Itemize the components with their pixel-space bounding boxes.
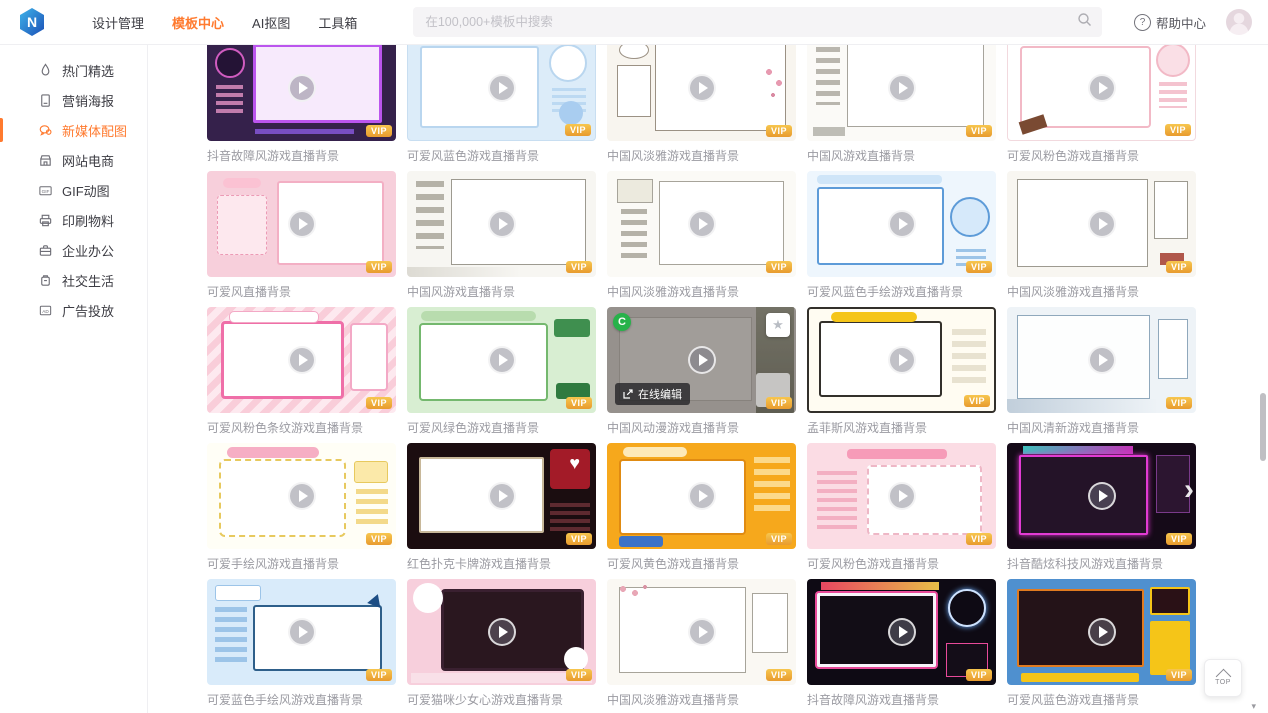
vip-badge: VIP	[766, 261, 792, 273]
sidebar-item-print[interactable]: 印刷物料	[0, 205, 147, 235]
template-card[interactable]: VIP 中国风淡雅游戏直播背景	[607, 45, 796, 163]
template-card[interactable]: VIP 可爱风直播背景	[207, 171, 396, 299]
sidebar-item-office[interactable]: 企业办公	[0, 235, 147, 265]
vip-badge: VIP	[366, 261, 392, 273]
template-card[interactable]: VIP 可爱手绘风游戏直播背景	[207, 443, 396, 571]
play-icon	[1088, 210, 1116, 238]
navbar-right: 帮助中心	[1134, 9, 1252, 35]
sidebar-item-new-media[interactable]: 新媒体配图	[0, 115, 147, 145]
play-icon	[688, 618, 716, 646]
play-icon	[1088, 618, 1116, 646]
search-bar[interactable]	[413, 7, 1102, 37]
template-title[interactable]: 可爱风蓝色游戏直播背景	[407, 149, 596, 163]
template-card[interactable]: VIP 抖音酷炫科技风游戏直播背景	[1007, 443, 1196, 571]
template-thumbnail[interactable]: VIP	[607, 171, 796, 277]
vip-badge: VIP	[766, 397, 792, 409]
briefcase-icon	[38, 243, 53, 258]
vip-badge: VIP	[766, 669, 792, 681]
template-title[interactable]: 抖音故障风游戏直播背景	[207, 149, 396, 163]
vip-badge: VIP	[1166, 397, 1192, 409]
sidebar-item-label: 企业办公	[62, 241, 114, 260]
question-icon	[1134, 14, 1151, 31]
play-icon	[488, 74, 516, 102]
vip-badge: VIP	[366, 397, 392, 409]
template-card[interactable]: VIP 抖音故障风游戏直播背景	[807, 579, 996, 707]
template-thumbnail[interactable]: VIP	[207, 171, 396, 277]
template-card[interactable]: VIP 可爱风黄色游戏直播背景	[607, 443, 796, 571]
svg-text:N: N	[27, 14, 37, 30]
template-thumbnail[interactable]: VIP	[607, 45, 796, 141]
svg-text:GIF: GIF	[42, 188, 50, 193]
sidebar-item-label: 广告投放	[62, 301, 114, 320]
sidebar-item-marketing-poster[interactable]: 营销海报	[0, 85, 147, 115]
template-card[interactable]: VIP 抖音故障风游戏直播背景	[207, 45, 396, 163]
template-title[interactable]: 可爱风粉色游戏直播背景	[1007, 149, 1196, 163]
sidebar-item-label: 印刷物料	[62, 211, 114, 230]
template-card[interactable]: VIP 中国风淡雅游戏直播背景	[607, 171, 796, 299]
vip-badge: VIP	[1165, 124, 1191, 136]
vip-badge: VIP	[966, 533, 992, 545]
play-icon	[288, 74, 316, 102]
play-icon	[888, 346, 916, 374]
template-thumbnail[interactable]: VIP	[807, 443, 996, 549]
template-title[interactable]: 可爱风蓝色手绘游戏直播背景	[807, 285, 996, 299]
back-to-top-button[interactable]: TOP	[1204, 659, 1242, 697]
template-title[interactable]: 抖音故障风游戏直播背景	[807, 693, 996, 707]
vip-badge: VIP	[766, 125, 792, 137]
template-title[interactable]: 可爱风直播背景	[207, 285, 396, 299]
storefront-icon	[38, 153, 53, 168]
favorite-star-button[interactable]	[766, 313, 790, 337]
template-title[interactable]: 中国风游戏直播背景	[407, 285, 596, 299]
play-icon	[1088, 74, 1116, 102]
vip-badge: VIP	[366, 669, 392, 681]
template-title[interactable]: 抖音酷炫科技风游戏直播背景	[1007, 557, 1196, 571]
template-title[interactable]: 可爱猫咪少女心游戏直播背景	[407, 693, 596, 707]
template-thumbnail[interactable]: VIP	[207, 443, 396, 549]
help-center-label: 帮助中心	[1156, 13, 1206, 32]
vip-badge: VIP	[766, 533, 792, 545]
template-title[interactable]: 可爱风粉色条纹游戏直播背景	[207, 421, 396, 435]
play-icon	[288, 482, 316, 510]
template-card[interactable]: VIP 可爱风粉色条纹游戏直播背景	[207, 307, 396, 435]
play-icon	[888, 74, 916, 102]
template-title[interactable]: 中国风游戏直播背景	[807, 149, 996, 163]
template-card[interactable]: VIP 可爱风绿色游戏直播背景	[407, 307, 596, 435]
vip-badge: VIP	[566, 261, 592, 273]
template-card[interactable]: VIP 可爱风粉色游戏直播背景	[1007, 45, 1196, 163]
template-card[interactable]: VIP 中国风淡雅游戏直播背景	[607, 579, 796, 707]
template-thumbnail[interactable]: VIP	[407, 45, 596, 141]
template-thumbnail[interactable]: VIP	[807, 307, 996, 413]
template-thumbnail[interactable]: VIP	[407, 443, 596, 549]
play-icon	[488, 346, 516, 374]
svg-text:AD: AD	[42, 308, 49, 313]
template-thumbnail[interactable]: VIP	[1007, 307, 1196, 413]
template-thumbnail[interactable]: VIP	[807, 579, 996, 685]
template-title[interactable]: 孟菲斯风游戏直播背景	[807, 421, 996, 435]
play-icon	[888, 482, 916, 510]
vip-badge: VIP	[966, 125, 992, 137]
template-thumbnail[interactable]: VIP	[607, 579, 796, 685]
vip-badge: VIP	[565, 124, 591, 136]
flame-icon	[38, 63, 53, 78]
template-thumbnail[interactable]: VIP	[407, 307, 596, 413]
online-edit-label: 在线编辑	[638, 386, 682, 402]
sidebar-item-gif[interactable]: GIF GIF动图	[0, 175, 147, 205]
template-thumbnail[interactable]: VIP	[207, 307, 396, 413]
sidebar-item-hot[interactable]: 热门精选	[0, 55, 147, 85]
vip-badge: VIP	[366, 125, 392, 137]
sidebar-item-label: 社交生活	[62, 271, 114, 290]
vip-badge: VIP	[566, 669, 592, 681]
search-input[interactable]	[423, 14, 1077, 30]
template-card[interactable]: VIP 中国风游戏直播背景	[407, 171, 596, 299]
play-icon	[288, 618, 316, 646]
play-icon	[888, 618, 916, 646]
template-title[interactable]: 中国风淡雅游戏直播背景	[1007, 285, 1196, 299]
template-card[interactable]: VIP 孟菲斯风游戏直播背景	[807, 307, 996, 435]
template-card[interactable]: VIP 中国风游戏直播背景	[807, 45, 996, 163]
vip-badge: VIP	[966, 669, 992, 681]
template-thumbnail[interactable]: VIP	[1007, 171, 1196, 277]
template-title[interactable]: 可爱风粉色游戏直播背景	[807, 557, 996, 571]
template-card[interactable]: VIP 中国风淡雅游戏直播背景	[1007, 171, 1196, 299]
edit-icon	[623, 389, 633, 399]
play-icon	[688, 210, 716, 238]
chat-image-icon	[38, 123, 53, 138]
template-title[interactable]: 中国风淡雅游戏直播背景	[607, 149, 796, 163]
vip-badge: VIP	[1166, 669, 1192, 681]
template-thumbnail[interactable]: VIP	[407, 171, 596, 277]
template-card[interactable]: VIP 可爱蓝色手绘风游戏直播背景	[207, 579, 396, 707]
nav-item-toolbox[interactable]: 工具箱	[318, 13, 357, 32]
printer-icon	[38, 213, 53, 228]
vip-badge: VIP	[964, 395, 990, 407]
online-edit-button[interactable]: 在线编辑	[615, 383, 690, 405]
template-title[interactable]: 中国风淡雅游戏直播背景	[607, 285, 796, 299]
play-icon	[488, 618, 516, 646]
category-sidebar: 热门精选 营销海报 新媒体配图 网站电商 GIF GIF动图 印刷物料 企业办公…	[0, 45, 148, 713]
template-card[interactable]: VIP 可爱风蓝色游戏直播背景	[407, 45, 596, 163]
play-icon	[688, 74, 716, 102]
template-card[interactable]: VIP 可爱风蓝色手绘游戏直播背景	[807, 171, 996, 299]
play-icon	[1088, 346, 1116, 374]
template-title[interactable]: 可爱手绘风游戏直播背景	[207, 557, 396, 571]
app-logo[interactable]: N	[16, 6, 48, 38]
vip-badge: VIP	[1166, 533, 1192, 545]
template-thumbnail[interactable]: VIP	[807, 45, 996, 141]
top-navbar: N 设计管理 模板中心 AI抠图 工具箱 帮助中心	[0, 0, 1268, 45]
template-title[interactable]: 中国风动漫游戏直播背景	[607, 421, 796, 435]
sidebar-item-ecommerce[interactable]: 网站电商	[0, 145, 147, 175]
play-icon	[288, 346, 316, 374]
social-icon	[38, 273, 53, 288]
play-icon	[688, 482, 716, 510]
template-thumbnail[interactable]: VIP	[607, 443, 796, 549]
template-title[interactable]: 可爱风蓝色游戏直播背景	[1007, 693, 1196, 707]
sidebar-item-label: 热门精选	[62, 61, 114, 80]
ad-icon: AD	[38, 303, 53, 318]
template-card[interactable]: VIP 可爱风粉色游戏直播背景	[807, 443, 996, 571]
template-card[interactable]: VIP 可爱风蓝色游戏直播背景	[1007, 579, 1196, 707]
vip-badge: VIP	[566, 397, 592, 409]
nav-item-design-manage[interactable]: 设计管理	[92, 13, 144, 32]
vip-badge: VIP	[566, 533, 592, 545]
help-center-link[interactable]: 帮助中心	[1134, 13, 1206, 32]
user-avatar[interactable]	[1226, 9, 1252, 35]
chevron-right-icon[interactable]	[1184, 475, 1194, 505]
template-thumbnail[interactable]: C 在线编辑 VIP	[607, 307, 796, 413]
play-icon	[688, 346, 716, 374]
template-grid-area: VIP 抖音故障风游戏直播背景 VIP 可爱风蓝色游戏直播背景 VIP 中国风淡…	[148, 45, 1268, 713]
template-title[interactable]: 可爱风黄色游戏直播背景	[607, 557, 796, 571]
gif-icon: GIF	[38, 183, 53, 198]
sidebar-item-advertising[interactable]: AD 广告投放	[0, 295, 147, 325]
template-grid: VIP 抖音故障风游戏直播背景 VIP 可爱风蓝色游戏直播背景 VIP 中国风淡…	[207, 45, 1268, 707]
sidebar-item-label: 网站电商	[62, 151, 114, 170]
sidebar-item-label: 新媒体配图	[62, 121, 127, 140]
play-icon	[888, 210, 916, 238]
template-thumbnail[interactable]: VIP	[407, 579, 596, 685]
template-thumbnail[interactable]: VIP	[807, 171, 996, 277]
play-icon	[488, 482, 516, 510]
template-thumbnail[interactable]: VIP	[1007, 579, 1196, 685]
vertical-scrollbar-thumb[interactable]	[1260, 393, 1266, 461]
template-card[interactable]: VIP 红色扑克卡牌游戏直播背景	[407, 443, 596, 571]
sidebar-item-label: GIF动图	[62, 181, 110, 200]
template-title[interactable]: 可爱蓝色手绘风游戏直播背景	[207, 693, 396, 707]
template-title[interactable]: 红色扑克卡牌游戏直播背景	[407, 557, 596, 571]
template-card-hovered[interactable]: C 在线编辑 VIP 中国风动漫游戏直播背景	[607, 307, 796, 435]
template-card[interactable]: VIP 中国风清新游戏直播背景	[1007, 307, 1196, 435]
template-card[interactable]: VIP 可爱猫咪少女心游戏直播背景	[407, 579, 596, 707]
template-thumbnail[interactable]: VIP	[1007, 443, 1196, 549]
primary-nav: 设计管理 模板中心 AI抠图 工具箱	[92, 13, 357, 32]
template-title[interactable]: 中国风清新游戏直播背景	[1007, 421, 1196, 435]
nav-item-ai-matting[interactable]: AI抠图	[252, 13, 290, 32]
sidebar-item-label: 营销海报	[62, 91, 114, 110]
template-title[interactable]: 中国风淡雅游戏直播背景	[607, 693, 796, 707]
template-thumbnail[interactable]: VIP	[207, 45, 396, 141]
vip-badge: VIP	[1166, 261, 1192, 273]
play-icon	[488, 210, 516, 238]
play-icon	[1088, 482, 1116, 510]
search-icon[interactable]	[1077, 12, 1092, 32]
vip-badge: VIP	[366, 533, 392, 545]
template-thumbnail[interactable]: VIP	[1007, 45, 1196, 141]
vip-badge: VIP	[966, 261, 992, 273]
template-title[interactable]: 可爱风绿色游戏直播背景	[407, 421, 596, 435]
poster-icon	[38, 93, 53, 108]
collapse-caret-icon[interactable]	[1251, 701, 1256, 712]
nav-item-template-center[interactable]: 模板中心	[172, 13, 224, 32]
play-icon	[288, 210, 316, 238]
copyright-badge: C	[613, 313, 631, 331]
sidebar-item-social-life[interactable]: 社交生活	[0, 265, 147, 295]
template-thumbnail[interactable]: VIP	[207, 579, 396, 685]
